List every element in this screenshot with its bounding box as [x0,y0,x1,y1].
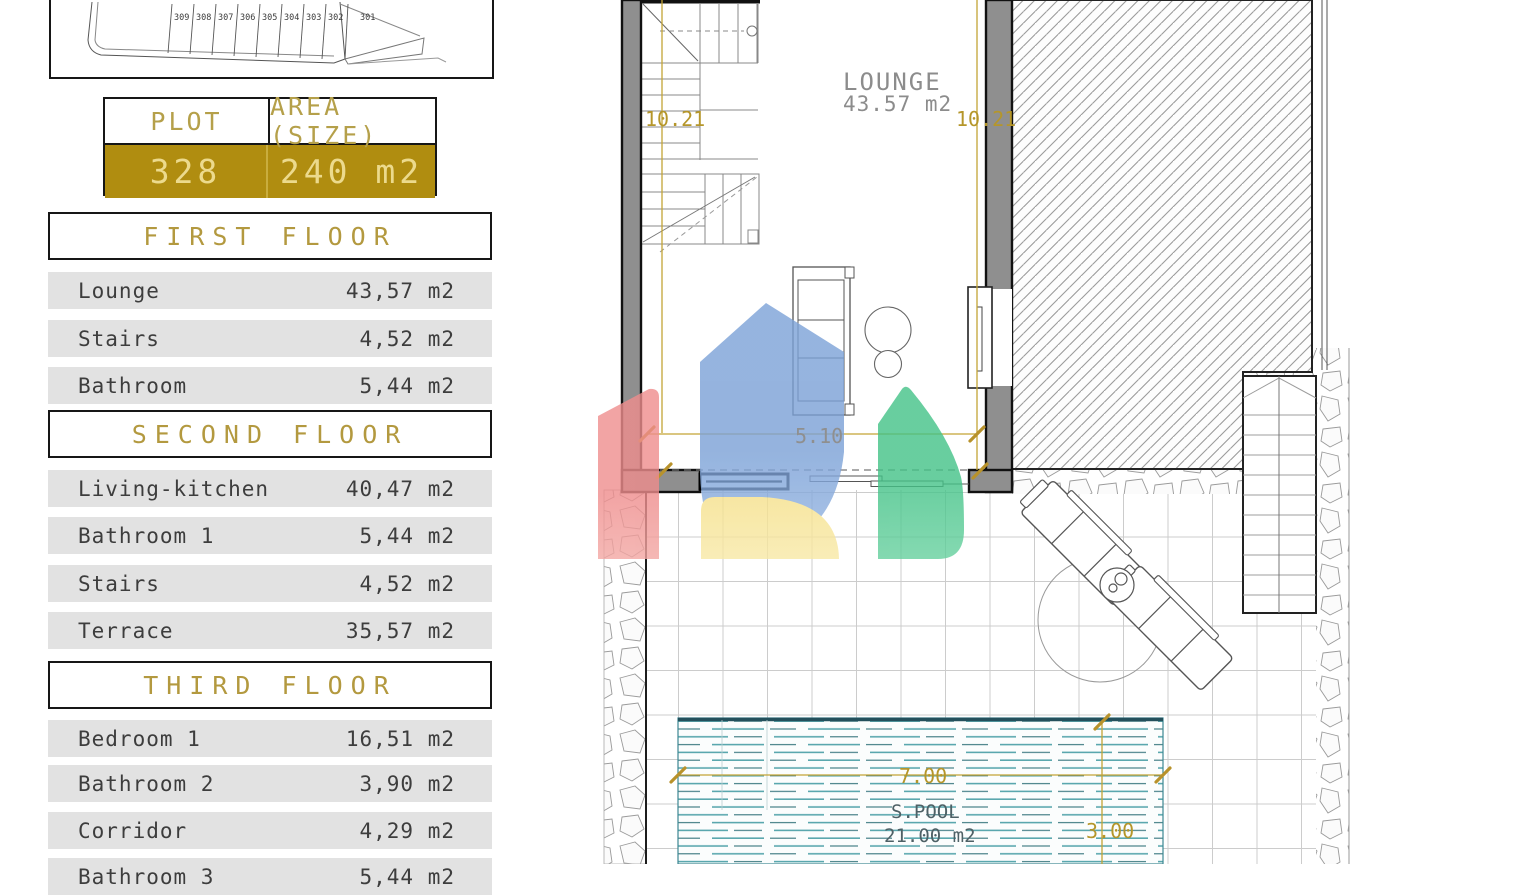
room-label: Stairs [48,572,160,596]
room-area-label: 43.57 m2 [843,92,952,116]
room-area: 4,52 m2 [359,572,492,596]
room-label: Bathroom 1 [48,524,214,548]
room-label: Bathroom 3 [48,865,214,889]
exterior-stairs [1243,376,1316,613]
plot-number: 308 [196,13,211,23]
section-title-first-floor: FIRST FLOOR [48,212,492,260]
pool-width-label: 7.00 [899,764,947,788]
logo-red-shape [598,389,659,559]
room-area: 4,29 m2 [359,819,492,843]
pool-depth-label: 3.00 [1086,819,1134,843]
plot-number: 309 [174,13,189,23]
table-row: Terrace 35,57 m2 [48,612,492,649]
section-title-second-floor: SECOND FLOOR [48,410,492,458]
plot-boundary-line [1322,0,1327,370]
plot-number: 307 [218,13,233,23]
plot-number: 302 [328,13,343,23]
room-label: Corridor [48,819,187,843]
table-row: Bathroom 5,44 m2 [48,367,492,404]
floorplan-page: { "site_plan": { "plots": ["309","308","… [0,0,1536,864]
room-area: 16,51 m2 [346,727,492,751]
plot-number: 305 [262,13,277,23]
section-title-third-floor: THIRD FLOOR [48,661,492,709]
plot-number: 304 [284,13,299,23]
plot-area-table: PLOT AREA (SIZE) 328 240 m2 [103,97,437,196]
room-area: 35,57 m2 [346,619,492,643]
room-label: Terrace [48,619,174,643]
plot-number: 301 [360,13,375,23]
room-label: Bathroom [48,374,187,398]
floor-plan-drawing: LOUNGE 43.57 m2 10.21 10.21 5.10 7.00 3.… [598,0,1536,864]
table-row: Corridor 4,29 m2 [48,812,492,849]
table-row: Living-kitchen 40,47 m2 [48,470,492,507]
room-area: 40,47 m2 [346,477,492,501]
room-area: 4,52 m2 [359,327,492,351]
room-area: 5,44 m2 [359,865,492,889]
dim-label-left: 10.21 [645,107,705,131]
table-row: Stairs 4,52 m2 [48,565,492,602]
plot-table-values: 328 240 m2 [105,145,435,198]
plot-number-cell: 328 [105,145,268,198]
plot-number: 306 [240,13,255,23]
table-row: Bathroom 1 5,44 m2 [48,517,492,554]
window [968,287,1012,388]
site-plan-drawing: 309 308 307 306 305 304 303 302 301 [51,0,488,73]
room-label: Bedroom 1 [48,727,201,751]
area-header-cell: AREA (SIZE) [270,99,435,143]
plot-header-cell: PLOT [105,99,270,143]
dim-label-width: 5.10 [795,424,843,448]
table-row: Bathroom 2 3,90 m2 [48,765,492,802]
plot-table-header: PLOT AREA (SIZE) [105,99,435,145]
plot-area-cell: 240 m2 [268,145,435,198]
table-row: Stairs 4,52 m2 [48,320,492,357]
room-label: Stairs [48,327,160,351]
room-label: Living-kitchen [48,477,269,501]
table-row: Bedroom 1 16,51 m2 [48,720,492,757]
room-label: Lounge [48,279,160,303]
room-label: Bathroom 2 [48,772,214,796]
pool-area-label: 21.00 m2 [884,825,976,847]
site-plan-thumbnail: 309 308 307 306 305 304 303 302 301 [49,0,494,79]
table-row: Lounge 43,57 m2 [48,272,492,309]
plot-number: 303 [306,13,321,23]
side-table [1100,568,1134,602]
room-area: 5,44 m2 [359,374,492,398]
room-area: 5,44 m2 [359,524,492,548]
floor-plan: LOUNGE 43.57 m2 10.21 10.21 5.10 7.00 3.… [598,0,1536,864]
room-area: 3,90 m2 [359,772,492,796]
room-area: 43,57 m2 [346,279,492,303]
dim-label-right: 10.21 [956,107,1016,131]
pool-name-label: S.POOL [891,801,960,823]
